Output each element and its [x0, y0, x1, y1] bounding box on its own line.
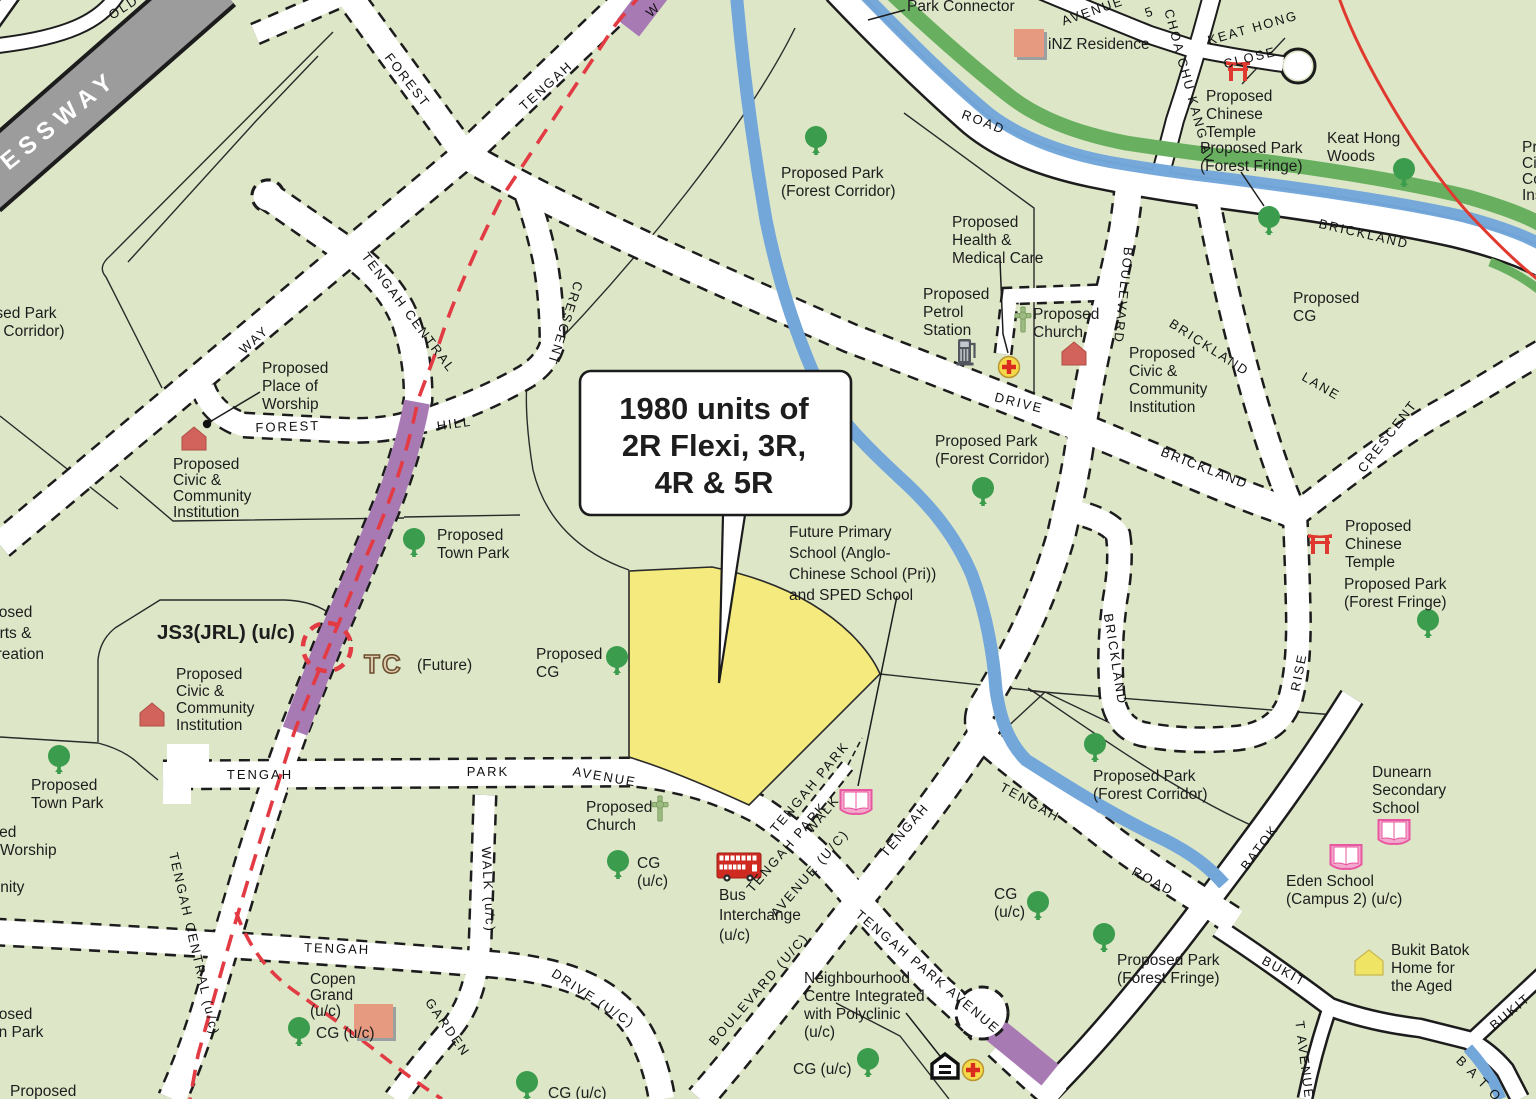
svg-text:Proposed Park: Proposed Park	[1200, 140, 1303, 157]
svg-text:Proposed: Proposed	[0, 824, 16, 841]
svg-text:Keat Hong: Keat Hong	[1327, 130, 1400, 147]
svg-text:Worship: Worship	[0, 842, 57, 859]
svg-text:Proposed: Proposed	[0, 1006, 32, 1023]
svg-text:Community: Community	[1129, 381, 1208, 398]
svg-text:School (Anglo-: School (Anglo-	[789, 545, 891, 562]
svg-text:Proposed: Proposed	[173, 456, 239, 473]
svg-text:(Forest Fringe): (Forest Fringe)	[1200, 158, 1303, 175]
svg-text:TENGAH: TENGAH	[227, 767, 293, 782]
svg-text:Community: Community	[0, 879, 25, 896]
svg-text:Proposed: Proposed	[952, 214, 1018, 231]
svg-text:Temple: Temple	[1206, 124, 1256, 141]
svg-text:School: School	[1372, 800, 1419, 817]
svg-text:Health &: Health &	[952, 232, 1012, 249]
svg-text:Proposed: Proposed	[1129, 345, 1195, 362]
svg-text:Town Park: Town Park	[437, 545, 510, 562]
svg-text:Proposed: Proposed	[0, 604, 32, 621]
svg-text:(u/c): (u/c)	[637, 873, 668, 890]
svg-text:(Forest Corridor): (Forest Corridor)	[0, 323, 65, 340]
svg-text:4R & 5R: 4R & 5R	[655, 465, 774, 500]
svg-text:Civic &: Civic &	[173, 472, 222, 489]
svg-text:Proposed: Proposed	[176, 666, 242, 683]
svg-text:Temple: Temple	[1345, 554, 1395, 571]
svg-text:Proposed: Proposed	[1522, 139, 1536, 156]
svg-text:Proposed Park: Proposed Park	[1344, 576, 1447, 593]
svg-text:Secondary: Secondary	[1372, 782, 1446, 799]
svg-text:(Campus 2) (u/c): (Campus 2) (u/c)	[1286, 891, 1402, 908]
svg-text:(u/c): (u/c)	[310, 1003, 341, 1020]
svg-text:Civic &: Civic &	[1129, 363, 1178, 380]
svg-text:Worship: Worship	[262, 396, 319, 413]
svg-text:(Forest Fringe): (Forest Fringe)	[1344, 594, 1447, 611]
svg-text:Proposed: Proposed	[262, 360, 328, 377]
svg-text:CG: CG	[1293, 308, 1316, 325]
svg-text:(Forest Fringe): (Forest Fringe)	[1117, 970, 1220, 987]
svg-text:Church: Church	[1033, 324, 1083, 341]
svg-text:Proposed Park: Proposed Park	[0, 305, 57, 322]
svg-text:TENGAH: TENGAH	[304, 940, 371, 957]
svg-text:Place of: Place of	[262, 378, 319, 395]
svg-text:Woods: Woods	[1327, 148, 1375, 165]
svg-text:Park Connector: Park Connector	[907, 0, 1015, 15]
svg-text:(Future): (Future)	[417, 657, 472, 674]
svg-text:(Forest Corridor): (Forest Corridor)	[781, 183, 896, 200]
svg-text:CG: CG	[637, 855, 660, 872]
svg-text:Church: Church	[586, 817, 636, 834]
svg-text:Petrol: Petrol	[923, 304, 964, 321]
svg-text:Proposed: Proposed	[1293, 290, 1359, 307]
svg-text:Neighbourhood: Neighbourhood	[804, 970, 910, 987]
svg-text:Proposed Park: Proposed Park	[935, 433, 1038, 450]
svg-text:(Forest Corridor): (Forest Corridor)	[935, 451, 1050, 468]
svg-text:CG (u/c): CG (u/c)	[793, 1061, 852, 1078]
svg-text:Institution: Institution	[1129, 399, 1195, 416]
svg-text:(u/c): (u/c)	[719, 927, 750, 944]
svg-text:Bukit Batok: Bukit Batok	[1391, 942, 1470, 959]
svg-text:Proposed: Proposed	[923, 286, 989, 303]
svg-text:Proposed Park: Proposed Park	[1093, 768, 1196, 785]
svg-text:iNZ Residence: iNZ Residence	[1048, 36, 1150, 53]
svg-text:Sports &: Sports &	[0, 625, 32, 642]
svg-text:Station: Station	[923, 322, 971, 339]
svg-text:Home for: Home for	[1391, 960, 1455, 977]
svg-text:Copen: Copen	[310, 971, 356, 988]
svg-text:CG: CG	[994, 886, 1017, 903]
svg-text:Community: Community	[1522, 171, 1536, 188]
svg-text:Institution: Institution	[173, 504, 239, 521]
svg-text:Proposed: Proposed	[437, 527, 503, 544]
svg-text:Proposed Park: Proposed Park	[781, 165, 884, 182]
svg-text:Chinese: Chinese	[1345, 536, 1402, 553]
svg-text:Proposed: Proposed	[586, 799, 652, 816]
svg-text:1980 units of: 1980 units of	[619, 391, 809, 426]
svg-text:CG (u/c): CG (u/c)	[548, 1085, 607, 1099]
svg-text:Proposed Park: Proposed Park	[1117, 952, 1220, 969]
svg-text:PARK: PARK	[467, 764, 509, 779]
svg-text:and SPED School: and SPED School	[789, 587, 913, 604]
svg-text:Institution: Institution	[176, 717, 242, 734]
svg-text:with Polyclinic: with Polyclinic	[803, 1006, 901, 1023]
svg-text:JS3(JRL) (u/c): JS3(JRL) (u/c)	[157, 621, 295, 644]
svg-text:CG: CG	[536, 664, 559, 681]
svg-text:Proposed: Proposed	[31, 777, 97, 794]
svg-text:Community: Community	[176, 700, 255, 717]
svg-text:Proposed: Proposed	[1033, 306, 1099, 323]
svg-text:Proposed: Proposed	[536, 646, 602, 663]
svg-text:Interchange: Interchange	[719, 907, 801, 924]
svg-text:Town Park: Town Park	[31, 795, 104, 812]
svg-text:Chinese School (Pri)): Chinese School (Pri))	[789, 566, 936, 583]
svg-text:(u/c): (u/c)	[804, 1024, 835, 1041]
svg-text:Chinese: Chinese	[1206, 106, 1263, 123]
svg-text:Recreation: Recreation	[0, 646, 44, 663]
svg-text:(Forest Corridor): (Forest Corridor)	[1093, 786, 1208, 803]
svg-text:(u/c): (u/c)	[994, 904, 1025, 921]
svg-text:Town Park: Town Park	[0, 1024, 44, 1041]
svg-text:Proposed: Proposed	[1206, 88, 1272, 105]
svg-text:Grand: Grand	[310, 987, 353, 1004]
svg-text:Centre Integrated: Centre Integrated	[804, 988, 925, 1005]
svg-text:FOREST: FOREST	[255, 418, 320, 435]
svg-text:CG (u/c): CG (u/c)	[316, 1025, 375, 1042]
svg-text:Bus: Bus	[719, 887, 746, 904]
svg-text:Eden School: Eden School	[1286, 873, 1374, 890]
svg-text:TC: TC	[364, 649, 403, 679]
svg-text:Community: Community	[173, 488, 252, 505]
svg-text:Future Primary: Future Primary	[789, 524, 892, 541]
svg-text:2R Flexi, 3R,: 2R Flexi, 3R,	[622, 428, 806, 463]
svg-text:Institution: Institution	[1522, 187, 1536, 204]
svg-text:the Aged: the Aged	[1391, 978, 1452, 995]
svg-text:Civic &: Civic &	[1522, 155, 1536, 172]
svg-text:Dunearn: Dunearn	[1372, 764, 1431, 781]
svg-text:Proposed: Proposed	[10, 1083, 76, 1099]
svg-text:Medical Care: Medical Care	[952, 250, 1043, 267]
svg-text:Proposed: Proposed	[1345, 518, 1411, 535]
svg-text:Civic &: Civic &	[176, 683, 225, 700]
